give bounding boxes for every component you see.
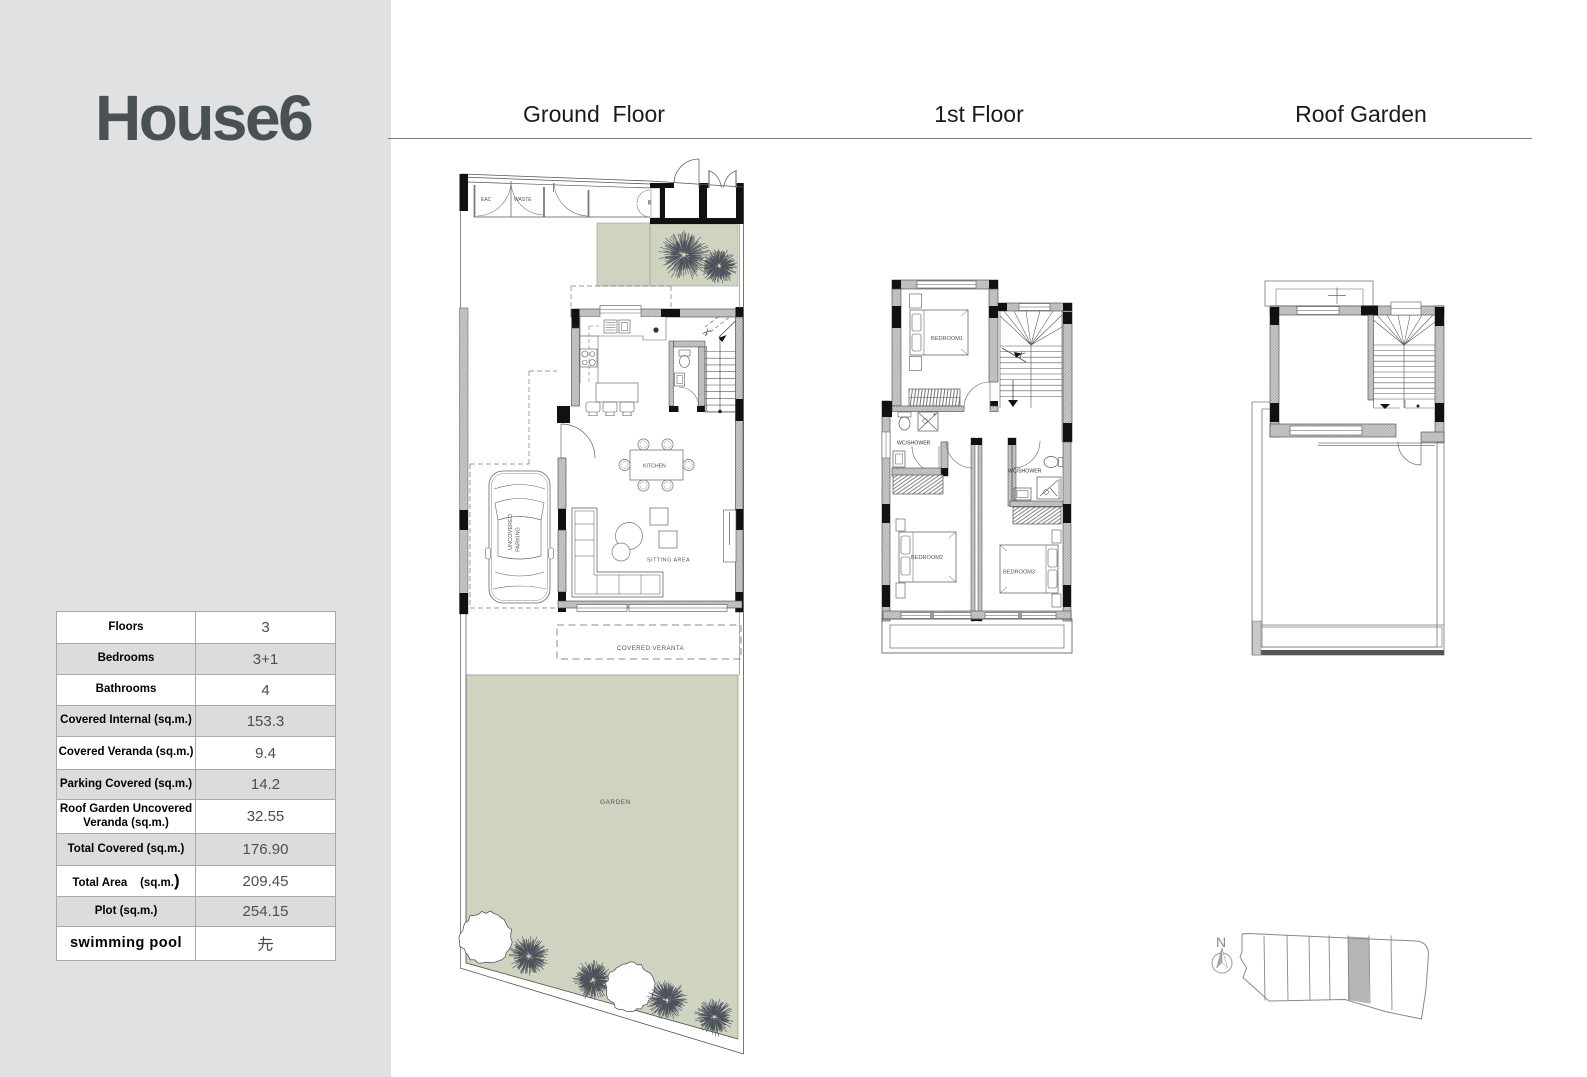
svg-text:WASTE: WASTE — [514, 197, 532, 203]
svg-text:GARDEN: GARDEN — [600, 799, 631, 806]
svg-text:KITCHEN: KITCHEN — [643, 464, 666, 470]
svg-text:SITTING AREA: SITTING AREA — [647, 558, 690, 564]
svg-text:BEDROOM2: BEDROOM2 — [911, 555, 943, 561]
svg-text:WC/SHOWER: WC/SHOWER — [897, 441, 931, 447]
svg-text:BEDROOM1: BEDROOM1 — [931, 336, 963, 342]
svg-text:BEDROOM3: BEDROOM3 — [1003, 570, 1035, 576]
svg-text:COVERED VERANTA: COVERED VERANTA — [617, 645, 685, 652]
svg-text:N: N — [1216, 934, 1226, 950]
svg-text:PARKING: PARKING — [516, 527, 522, 552]
svg-text:EAC: EAC — [481, 197, 492, 203]
svg-text:WC/SHOWER: WC/SHOWER — [1008, 469, 1042, 475]
svg-text:UNCOVERED: UNCOVERED — [508, 514, 514, 550]
